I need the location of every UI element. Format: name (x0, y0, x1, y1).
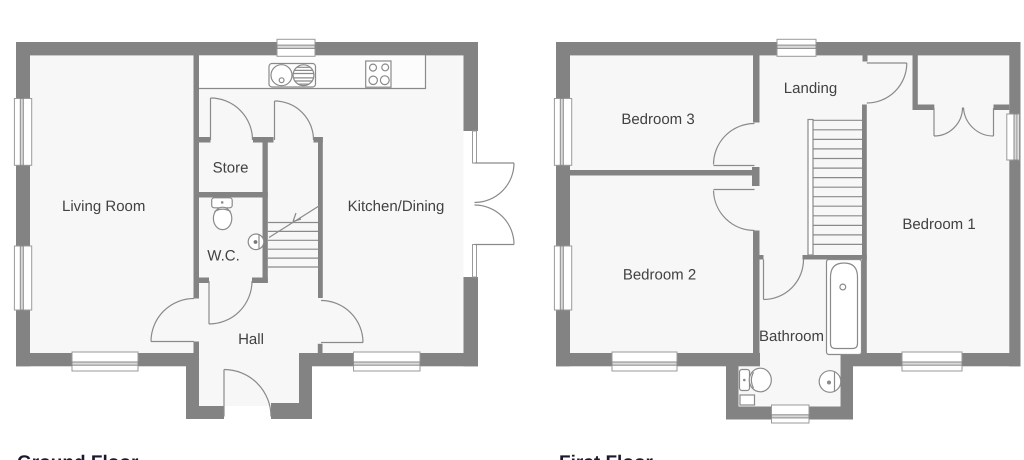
svg-text:Bedroom 1: Bedroom 1 (902, 216, 975, 233)
svg-text:First Floor: First Floor (559, 453, 654, 460)
svg-text:Kitchen/Dining: Kitchen/Dining (348, 198, 445, 215)
svg-text:W.C.: W.C. (207, 247, 240, 264)
svg-text:Hall: Hall (238, 331, 264, 348)
svg-text:Ground Floor: Ground Floor (17, 453, 139, 460)
svg-text:Bedroom 2: Bedroom 2 (623, 267, 696, 284)
svg-text:Living Room: Living Room (62, 198, 145, 215)
svg-text:Bedroom 3: Bedroom 3 (621, 111, 694, 128)
svg-text:Store: Store (213, 160, 249, 177)
svg-text:Landing: Landing (784, 80, 837, 97)
svg-text:Bathroom: Bathroom (759, 328, 824, 345)
